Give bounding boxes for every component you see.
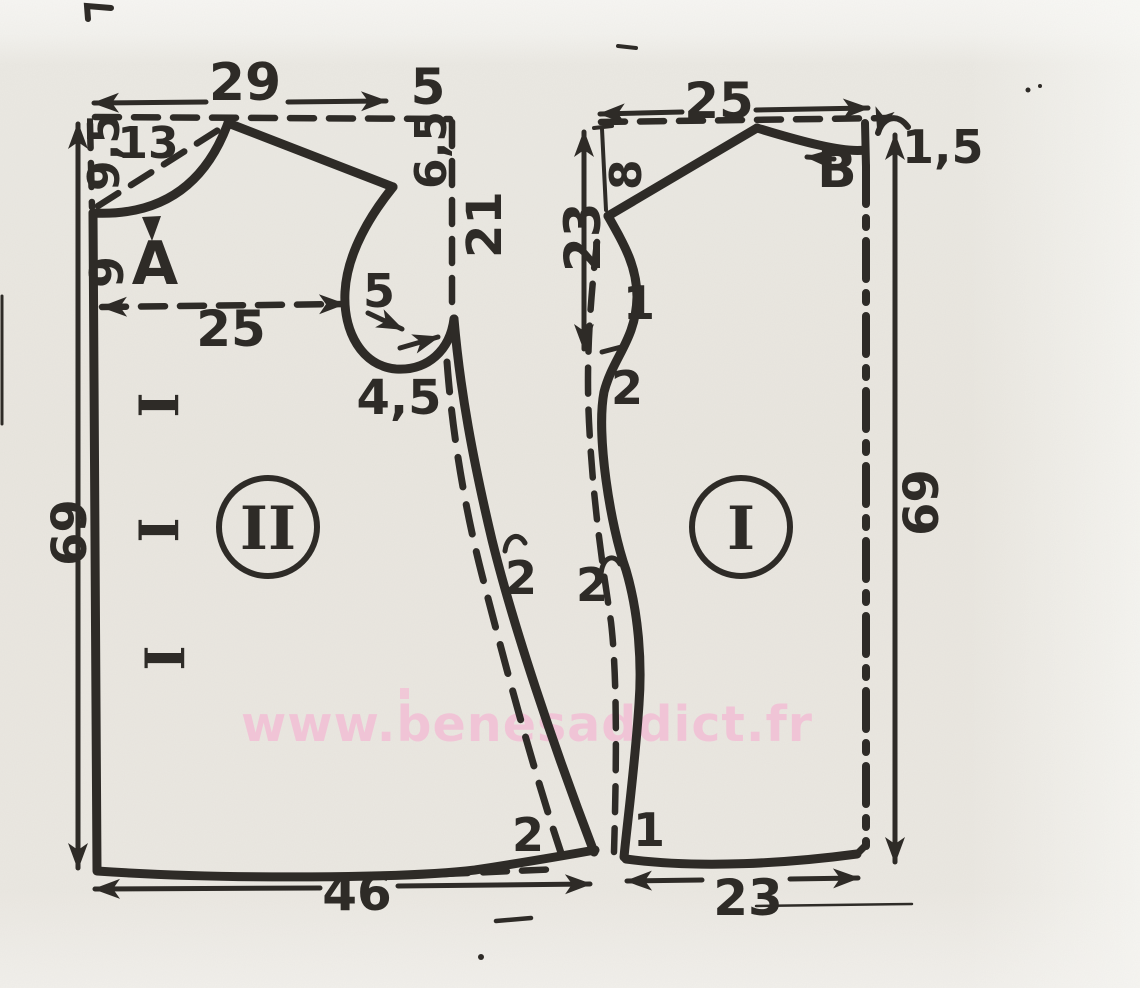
dot-artifact-2: [1038, 84, 1042, 88]
front-hem-notch-label: 1: [633, 803, 665, 857]
front-edge-offset-upper-label: 2: [611, 361, 643, 415]
front-hem-dimension-left: [627, 880, 702, 881]
back-hem-width-label: 46: [322, 864, 392, 922]
speck-artifact: [478, 954, 484, 960]
back-armhole-base-label: 4,5: [356, 370, 441, 426]
back-neck-diagonal-label: 13: [117, 118, 178, 169]
back-armhole-top-label: 6,5: [406, 111, 457, 189]
back-half-width-label: 25: [196, 300, 266, 358]
front-hem-dimension-right: [790, 878, 858, 879]
front-hem-width-label: 23: [713, 869, 783, 927]
front-neck-drop-label: 1,5: [902, 120, 984, 174]
front-top-width-dimension-right: [756, 108, 868, 110]
pink-pixel-artifact: [400, 688, 409, 699]
front-piece-number-label: I: [727, 494, 755, 564]
front-edge-offset-lower-label: 2: [576, 558, 608, 612]
front-length-label: 69: [894, 469, 950, 536]
front-top-width-label: 25: [684, 72, 754, 130]
bottom-dash-artifact: [496, 918, 531, 921]
back-length-label: 69: [42, 499, 98, 566]
front-point-b-label: B: [817, 140, 857, 200]
front-edge-depth-label: 23: [554, 202, 612, 272]
back-hem-dimension-left: [95, 888, 320, 889]
back-top-width-dimension-left: [94, 102, 206, 103]
back-armhole-notch-label: 5: [363, 264, 395, 318]
scanned-sewing-pattern-page: www.benesaddict.fr 29 5 9,5 13 A 9: [0, 0, 1140, 988]
front-shoulder-drop-label: 8: [601, 159, 652, 190]
back-top-width-dimension-right: [288, 101, 386, 102]
front-top-corner-bar: [865, 123, 866, 167]
front-shoulder-drop-top-tick: [594, 126, 612, 128]
back-button-mark-3: I: [132, 645, 196, 670]
front-notch-one-label: 1: [623, 276, 655, 330]
dot-artifact-1: [1026, 88, 1031, 93]
back-center-offset-label: 9: [80, 256, 134, 288]
sewing-pattern-diagram: www.benesaddict.fr 29 5 9,5 13 A 9: [0, 0, 1140, 988]
back-button-mark-2: I: [126, 517, 190, 542]
back-hem-dimension-right: [398, 884, 590, 886]
back-hem-rise-label: 2: [512, 808, 544, 862]
back-side-offset-label: 2: [505, 551, 537, 605]
back-button-mark-1: I: [126, 392, 190, 417]
back-piece-number-label: II: [240, 494, 296, 564]
back-shoulder-extra-label: 5: [411, 58, 446, 116]
back-armhole-depth-label: 21: [457, 191, 513, 258]
top-dash-artifact: [618, 46, 636, 48]
back-top-width-label: 29: [209, 53, 281, 113]
back-point-a-label: A: [132, 229, 179, 299]
front-top-width-dimension-left: [600, 112, 682, 114]
